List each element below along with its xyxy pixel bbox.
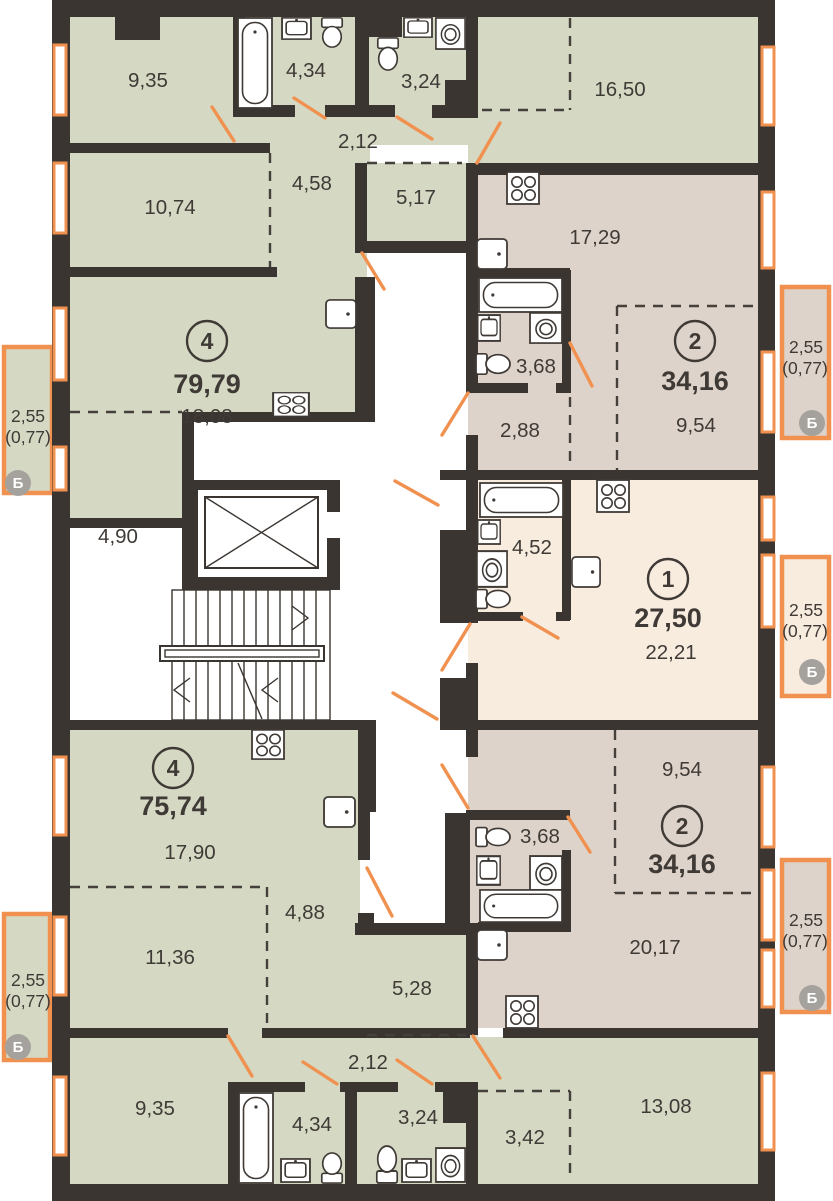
apartment-total-area: 34,16 xyxy=(661,366,729,396)
sink-icon xyxy=(402,1159,431,1182)
stove-icon xyxy=(506,996,538,1028)
washing-machine-icon xyxy=(530,856,562,890)
bathtub-icon xyxy=(479,278,562,312)
balcony-reduced-label: (0,77) xyxy=(782,358,828,378)
balcony-area-label: 2,55 xyxy=(789,337,823,357)
room-area-label: 9,54 xyxy=(662,758,702,781)
bathtub-icon xyxy=(239,1093,273,1183)
washing-machine-icon xyxy=(436,18,465,49)
balcony-badge-letter: Б xyxy=(807,664,818,681)
room-area-label: 4,34 xyxy=(292,1113,332,1136)
sink-icon xyxy=(404,18,432,37)
room-area-label: 4,90 xyxy=(98,525,138,548)
balcony-badge-letter: Б xyxy=(13,1039,24,1056)
room-area-label: 18,08 xyxy=(181,405,232,428)
toilet-icon xyxy=(377,1146,397,1183)
bathtub-icon xyxy=(480,483,563,517)
floor-plan: 4 79,79 2 34,16 1 27,50 4 75,74 2 34,16 … xyxy=(0,0,833,1201)
room-area-label: 4,58 xyxy=(292,172,332,195)
apartment-number: 1 xyxy=(662,566,675,592)
stair-landing xyxy=(160,646,324,661)
kitchen-sink-icon xyxy=(477,239,507,269)
room-area-label: 3,24 xyxy=(398,1106,438,1129)
apartment-total-area: 79,79 xyxy=(173,369,241,399)
room-area-label: 5,17 xyxy=(396,186,436,209)
balcony-area-label: 2,55 xyxy=(11,970,45,990)
room-area-label: 3,68 xyxy=(520,825,560,848)
balcony-reduced-label: (0,77) xyxy=(5,991,51,1011)
room-area-label: 11,36 xyxy=(145,946,195,969)
room-area-label: 9,35 xyxy=(135,1097,175,1120)
balcony-badge-letter: Б xyxy=(807,990,818,1007)
stove-icon xyxy=(507,172,539,204)
balcony-badge-letter: Б xyxy=(13,475,24,492)
balcony-reduced-label: (0,77) xyxy=(782,621,828,641)
room-area-label: 16,50 xyxy=(594,78,645,101)
apartment-number: 2 xyxy=(676,813,689,839)
apartment-number: 4 xyxy=(201,328,214,354)
sink-icon xyxy=(478,315,500,341)
bathtub-icon xyxy=(480,890,562,922)
stove-icon xyxy=(597,480,629,512)
room-area-label: 9,54 xyxy=(676,414,716,437)
room-area-label: 4,88 xyxy=(285,901,325,924)
stove-icon xyxy=(273,393,309,417)
kitchen-sink-icon xyxy=(324,797,355,827)
room-area-label: 17,90 xyxy=(164,841,215,864)
balcony-area-label: 2,55 xyxy=(789,600,823,620)
apartment-number: 4 xyxy=(167,755,180,781)
sink-icon xyxy=(478,520,500,544)
balcony-badge-letter: Б xyxy=(807,415,818,432)
room-area-label: 22,21 xyxy=(645,641,696,664)
bathtub-icon xyxy=(238,18,272,108)
toilet-icon xyxy=(476,354,510,374)
washing-machine-icon xyxy=(530,313,562,343)
stove-icon xyxy=(252,730,284,759)
toilet-icon xyxy=(476,590,510,609)
room-area-label: 2,12 xyxy=(348,1051,388,1074)
apartment-total-area: 34,16 xyxy=(648,849,716,879)
elevator xyxy=(205,497,318,568)
balcony-area-label: 2,55 xyxy=(789,910,823,930)
room-area-label: 3,68 xyxy=(516,355,556,378)
apartment-total-area: 27,50 xyxy=(634,603,702,633)
apartment-number: 2 xyxy=(689,328,702,354)
room-area-label: 3,42 xyxy=(505,1126,545,1149)
room-area-label: 17,29 xyxy=(569,226,620,249)
room-area-label: 2,12 xyxy=(338,130,378,153)
room-area-label: 9,35 xyxy=(128,69,168,92)
kitchen-sink-icon xyxy=(326,300,356,328)
room-area-label: 10,74 xyxy=(144,196,195,219)
room-area-label: 13,08 xyxy=(640,1095,691,1118)
toilet-icon xyxy=(476,828,510,847)
room-area-label: 20,17 xyxy=(629,936,680,959)
kitchen-sink-icon xyxy=(572,557,600,587)
balcony-reduced-label: (0,77) xyxy=(5,427,51,447)
room-area-label: 5,28 xyxy=(392,977,432,1000)
sink-icon xyxy=(477,856,500,885)
room-area-label: 4,34 xyxy=(286,59,326,82)
washing-machine-icon xyxy=(436,1148,465,1182)
toilet-icon xyxy=(378,38,398,70)
toilet-icon xyxy=(322,18,342,47)
balcony-area-label: 2,55 xyxy=(11,406,45,426)
room-area-label: 2,88 xyxy=(500,419,540,442)
sink-icon xyxy=(282,18,311,39)
room-area-label: 4,52 xyxy=(512,536,552,559)
apartment-total-area: 75,74 xyxy=(139,791,207,821)
toilet-icon xyxy=(322,1153,342,1183)
floor-plan-svg: 4 79,79 2 34,16 1 27,50 4 75,74 2 34,16 … xyxy=(0,0,833,1201)
sink-icon xyxy=(281,1159,310,1182)
balcony-reduced-label: (0,77) xyxy=(782,931,828,951)
washing-machine-icon xyxy=(477,551,507,587)
room-area-label: 3,24 xyxy=(401,70,441,93)
kitchen-sink-icon xyxy=(477,930,507,960)
